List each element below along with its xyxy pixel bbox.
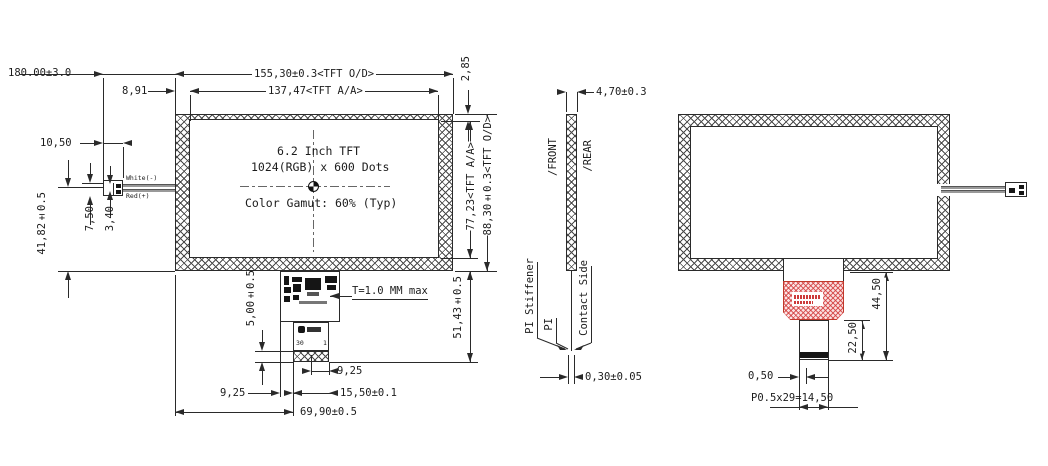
- dim-line: [80, 143, 94, 144]
- rear-wire: [941, 186, 1005, 189]
- dim-arrow: [467, 121, 473, 130]
- fpc-thickness-note: T=1.0 MM max: [352, 285, 428, 300]
- display-resolution-text: 1024(RGB) x 600 Dots: [251, 161, 389, 173]
- dim-top-border: 2,85: [460, 56, 473, 81]
- dim-line: [770, 407, 858, 408]
- dim-line: [540, 377, 559, 378]
- dim-arrow: [467, 271, 473, 280]
- rear-backlight-connector: [1005, 182, 1027, 197]
- dim-fpc-right: 9,25: [337, 365, 362, 377]
- dim-od-height: 88,30±0.3<TFT O/D>: [480, 116, 497, 235]
- dim-arrow: [302, 368, 311, 374]
- dim-wire-b: 3,40: [104, 206, 117, 231]
- center-mark-icon: [308, 181, 319, 192]
- dim-contact-pitch: P0.5x29=14,50: [751, 392, 833, 404]
- dim-line: [110, 166, 111, 175]
- dim-wire-a: 7,50: [84, 206, 97, 231]
- dim-arrow: [574, 374, 583, 380]
- front-surface-label: /FRONT: [547, 138, 560, 176]
- fpc-neck-edge: [783, 259, 784, 281]
- ext-line: [577, 92, 578, 112]
- ext-line: [58, 187, 103, 188]
- ext-line: [844, 320, 870, 321]
- dim-arrow: [65, 271, 71, 280]
- dim-left-border: 8,91: [122, 85, 147, 97]
- ext-line: [455, 271, 497, 272]
- ext-line: [441, 121, 480, 122]
- ext-line: [330, 362, 478, 363]
- dim-thickness: 4,70±0.3: [596, 86, 647, 98]
- dim-line: [470, 271, 471, 362]
- pin-30-label: 30: [296, 340, 304, 347]
- ext-line: [175, 275, 176, 416]
- dim-arrow: [484, 262, 490, 271]
- wire-red-label: Red(+): [126, 193, 149, 200]
- ext-line: [280, 322, 281, 397]
- dim-line: [68, 280, 69, 298]
- fpc-neck-edge: [843, 259, 844, 281]
- dim-arrow: [577, 89, 586, 95]
- ext-line: [455, 114, 497, 115]
- fpc-part-number-text: [299, 301, 327, 304]
- dim-arrow: [284, 409, 293, 415]
- backlight-connector: [103, 180, 123, 196]
- dim-line: [148, 91, 166, 92]
- dim-line: [778, 377, 790, 378]
- dim-fpc-length: 51,43±0.5: [450, 276, 467, 339]
- dim-arrow: [467, 249, 473, 258]
- dim-arrow: [284, 390, 293, 396]
- dim-arrow: [87, 174, 93, 183]
- dim-arrow: [465, 105, 471, 114]
- ext-line: [438, 95, 439, 121]
- ext-line: [829, 360, 893, 361]
- driver-ic: [305, 278, 321, 290]
- dim-line: [311, 371, 329, 372]
- dim-line: [90, 163, 91, 174]
- ext-line: [255, 351, 293, 352]
- dim-connector-length: 10,50: [40, 137, 72, 149]
- dim-arrow: [271, 390, 280, 396]
- ext-line: [190, 95, 191, 121]
- rear-surface-label: /REAR: [582, 140, 595, 172]
- dim-arrow: [259, 342, 265, 351]
- dim-line: [175, 412, 293, 413]
- ext-line: [293, 362, 294, 416]
- rear-wire: [941, 190, 1005, 193]
- ext-line: [568, 355, 569, 384]
- fpc-tail-tab: 30 1: [293, 322, 329, 351]
- dim-arrow: [94, 71, 103, 77]
- dim-arrow: [175, 409, 184, 415]
- dim-fpc-total-length: 44,50: [869, 278, 886, 310]
- dim-contact-margin: 0,50: [748, 370, 773, 382]
- dim-line: [262, 330, 263, 342]
- dim-wire-position: 41,82±0.5: [36, 192, 49, 255]
- dim-arrow: [166, 88, 175, 94]
- fpc-exit-gap: [783, 259, 843, 272]
- ext-line: [103, 78, 104, 180]
- side-panel-section: [566, 114, 577, 271]
- dim-arrow: [559, 374, 568, 380]
- pi-label: PI: [543, 318, 556, 331]
- dim-line: [68, 160, 69, 178]
- dim-od-width: 155,30±0.3<TFT O/D>: [252, 68, 376, 80]
- dim-arrow: [790, 374, 799, 380]
- ext-line: [566, 92, 567, 112]
- dim-arrow: [429, 88, 438, 94]
- dim-arrow: [883, 351, 889, 360]
- ext-line: [58, 271, 175, 272]
- display-gamut-text: Color Gamut: 60% (Typ): [245, 197, 397, 209]
- dim-arrow: [467, 353, 473, 362]
- dim-arrow: [806, 374, 815, 380]
- dim-line: [248, 393, 271, 394]
- fpc-marking-line: [794, 295, 820, 299]
- dim-arrow: [329, 390, 338, 396]
- dim-fpc-left: 9,25: [220, 387, 245, 399]
- ext-line: [82, 183, 103, 184]
- dim-tab-width: 15,50±0.1: [340, 387, 397, 399]
- dim-aa-height: 77,23<TFT A/A>: [463, 142, 480, 231]
- fpc-marking-line: [794, 301, 813, 304]
- leader-arrow: [330, 293, 339, 299]
- ext-line: [311, 355, 312, 375]
- ext-line: [123, 147, 124, 178]
- dim-line: [886, 272, 887, 360]
- display-size-text: 6.2 Inch TFT: [277, 145, 360, 157]
- brand-logo-icon: [298, 326, 305, 333]
- ext-line: [441, 258, 478, 259]
- dim-arrow: [107, 175, 113, 184]
- dim-arrow: [94, 140, 103, 146]
- dim-tail-length: 22,50: [845, 322, 862, 354]
- dim-arrow: [87, 196, 93, 205]
- wire-white-label: White(-): [126, 175, 157, 182]
- dim-fpc-offset: 69,90±0.5: [300, 406, 357, 418]
- ext-line: [175, 78, 176, 114]
- ext-line: [453, 78, 454, 114]
- dim-line: [103, 143, 123, 144]
- contact-side-label: Contact Side: [578, 260, 591, 336]
- dim-arrow: [123, 140, 132, 146]
- dim-line: [262, 371, 263, 385]
- dim-arrow: [107, 191, 113, 200]
- engineering-drawing: 6.2 Inch TFT 1024(RGB) x 600 Dots Color …: [0, 0, 1048, 466]
- dim-overall-width: 180.00±3.0: [8, 67, 71, 79]
- dim-arrow: [444, 71, 453, 77]
- dim-aa-width: 137,47<TFT A/A>: [266, 85, 365, 97]
- dim-line: [586, 92, 594, 93]
- wire-white: [123, 184, 175, 187]
- dim-contact-exposure: 5,00±0.5: [245, 270, 258, 326]
- dim-arrow: [65, 178, 71, 187]
- dim-arrow: [799, 404, 808, 410]
- dim-arrow: [190, 88, 199, 94]
- rear-fpc-tail: [799, 320, 829, 360]
- dim-arrow: [819, 404, 828, 410]
- pin-1-label: 1: [323, 340, 327, 347]
- dim-stiffener-thickness: 0,30±0.05: [585, 371, 642, 383]
- dim-line: [815, 377, 828, 378]
- contact-band: [800, 352, 828, 358]
- rear-panel-inner: [690, 126, 938, 259]
- dim-arrow: [557, 89, 566, 95]
- fpc-marking-box: [792, 292, 823, 306]
- dim-arrow: [175, 71, 184, 77]
- dim-arrow: [259, 362, 265, 371]
- dim-line: [468, 90, 469, 105]
- pi-stiffener-label: PI Stiffener: [524, 258, 537, 334]
